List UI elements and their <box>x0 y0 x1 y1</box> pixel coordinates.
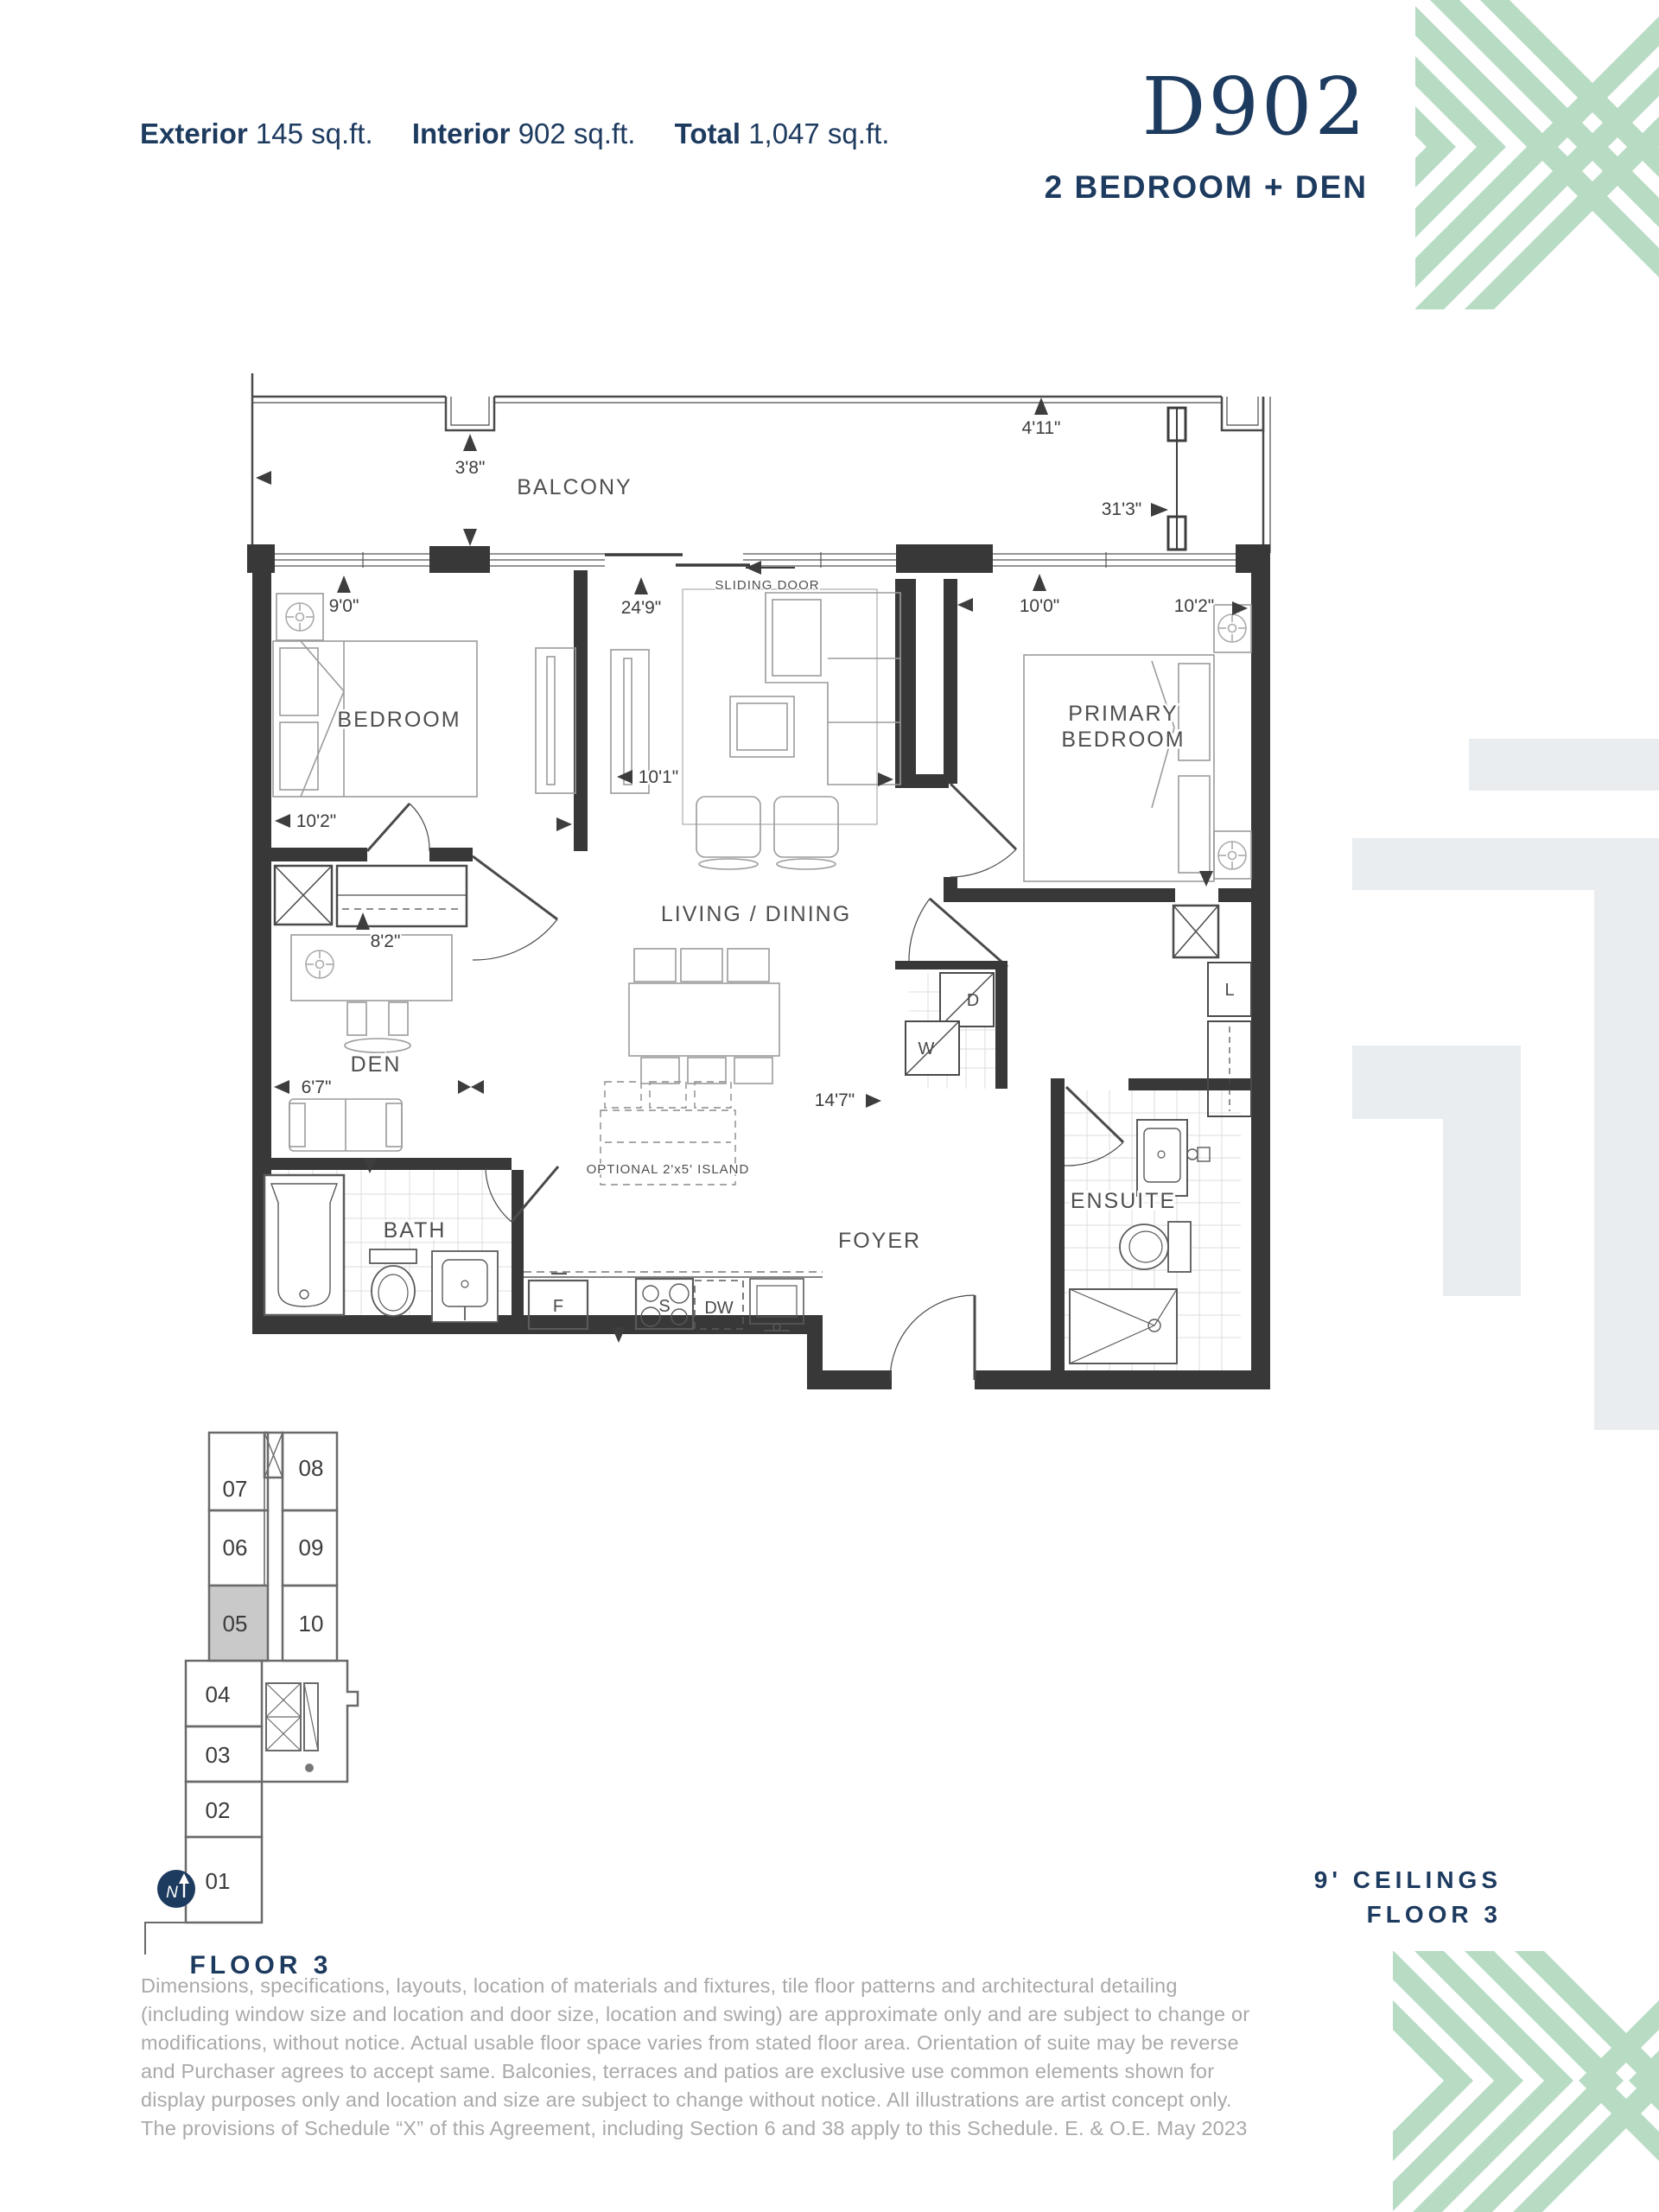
keyplan-tail <box>145 1923 186 1955</box>
light-icon <box>1218 842 1246 869</box>
brand-pattern-top-right <box>1130 0 1659 458</box>
keyplan-label-09: 09 <box>299 1535 324 1560</box>
dim-living-length: 24'9" <box>621 598 662 618</box>
keyplan-label-07: 07 <box>223 1476 248 1502</box>
watermark-shapes <box>1352 739 1659 1430</box>
light-icon <box>1218 614 1246 642</box>
disclaimer-line: and Purchaser agrees to accept same. Bal… <box>141 2057 1290 2086</box>
keyplan-label-06: 06 <box>223 1535 248 1560</box>
hall-closets <box>275 866 467 926</box>
unit-plan: BALCONY BEDROOM LIVING / DINING PRIMARY … <box>247 373 1270 1389</box>
compass-n: N <box>166 1884 178 1902</box>
dim-balcony-length: 31'3" <box>1102 499 1142 519</box>
keyplan-core-outline <box>262 1661 358 1782</box>
bedroom-furniture <box>273 594 649 797</box>
disclaimer-line: modifications, without notice. Actual us… <box>141 2029 1290 2057</box>
label-dryer: D <box>967 991 979 1010</box>
disclaimer-line: (including window size and location and … <box>141 2000 1290 2029</box>
watermark-seven-small <box>1352 1046 1521 1296</box>
key-plan: 07 08 06 09 05 10 04 03 02 01 N FLOOR 3 <box>145 1433 358 1980</box>
light-icon <box>286 603 314 631</box>
disclaimer-line: Dimensions, specifications, layouts, loc… <box>141 1972 1290 2000</box>
dim-bedroom-depth: 10'2" <box>296 811 337 831</box>
dim-bedroom-width: 9'0" <box>329 596 359 616</box>
room-label-bedroom: BEDROOM <box>337 708 461 732</box>
watermark-bar <box>1469 739 1659 791</box>
label-fridge: F <box>553 1297 563 1316</box>
dim-den-width: 8'2" <box>371 931 401 951</box>
ceiling-note: 9' CEILINGS FLOOR 3 <box>1314 1863 1502 1932</box>
keyplan-label-08: 08 <box>299 1455 324 1481</box>
dim-balcony-right: 4'11" <box>1022 418 1061 438</box>
disclaimer-line: display purposes only and location and s… <box>141 2086 1290 2114</box>
dining-set <box>629 949 779 1084</box>
bath-fixtures <box>264 1175 498 1322</box>
disclaimer-line: The provisions of Schedule “X” of this A… <box>141 2114 1290 2143</box>
keyplan-dot <box>305 1764 314 1772</box>
room-label-primary-line1: PRIMARY <box>1068 702 1178 726</box>
room-label-balcony: BALCONY <box>517 475 632 499</box>
dim-balcony-notch: 3'8" <box>455 458 486 478</box>
keyplan-label-03: 03 <box>206 1742 231 1768</box>
ceiling-note-line1: 9' CEILINGS <box>1314 1863 1502 1897</box>
keyplan-label-10: 10 <box>299 1611 324 1637</box>
balcony-rail <box>252 373 1270 553</box>
label-optional-island: OPTIONAL 2'x5' ISLAND <box>587 1162 750 1177</box>
keyplan-label-01: 01 <box>206 1868 231 1894</box>
laundry-closet <box>895 961 1007 1089</box>
ceiling-note-line2: FLOOR 3 <box>1314 1897 1502 1932</box>
label-sliding-door: SLIDING DOOR <box>715 578 819 593</box>
room-label-ensuite: ENSUITE <box>1071 1189 1176 1213</box>
disclaimer: Dimensions, specifications, layouts, loc… <box>141 1972 1290 2143</box>
dim-foyer-length: 14'7" <box>815 1090 855 1110</box>
room-label-bath: BATH <box>384 1218 447 1243</box>
dim-line-balcony-length <box>1168 408 1185 550</box>
room-label-foyer: FOYER <box>838 1229 921 1253</box>
dim-living-width: 10'1" <box>639 767 679 787</box>
keyplan-label-02: 02 <box>206 1797 231 1823</box>
room-label-living-dining: LIVING / DINING <box>661 902 851 926</box>
room-label-primary-line2: BEDROOM <box>1061 728 1185 752</box>
dim-primary-depth: 10'2" <box>1174 596 1215 616</box>
room-label-den: DEN <box>351 1052 402 1077</box>
dim-den-depth: 6'7" <box>302 1077 332 1097</box>
floorplan-page: Exterior 145 sq.ft. Interior 902 sq.ft. … <box>0 0 1659 2212</box>
den-furniture <box>289 935 452 1151</box>
label-washer: W <box>918 1039 935 1058</box>
label-dishwasher: DW <box>704 1299 733 1318</box>
dim-primary-width: 10'0" <box>1020 596 1060 616</box>
keyplan-label-05: 05 <box>223 1611 248 1637</box>
label-linen: L <box>1224 981 1234 1000</box>
light-icon <box>306 950 334 978</box>
ensuite-fixtures <box>1070 1120 1210 1363</box>
compass-icon: N <box>157 1870 195 1908</box>
living-furniture <box>683 589 900 869</box>
keyplan-label-04: 04 <box>206 1681 231 1707</box>
label-stove: S <box>658 1297 670 1316</box>
